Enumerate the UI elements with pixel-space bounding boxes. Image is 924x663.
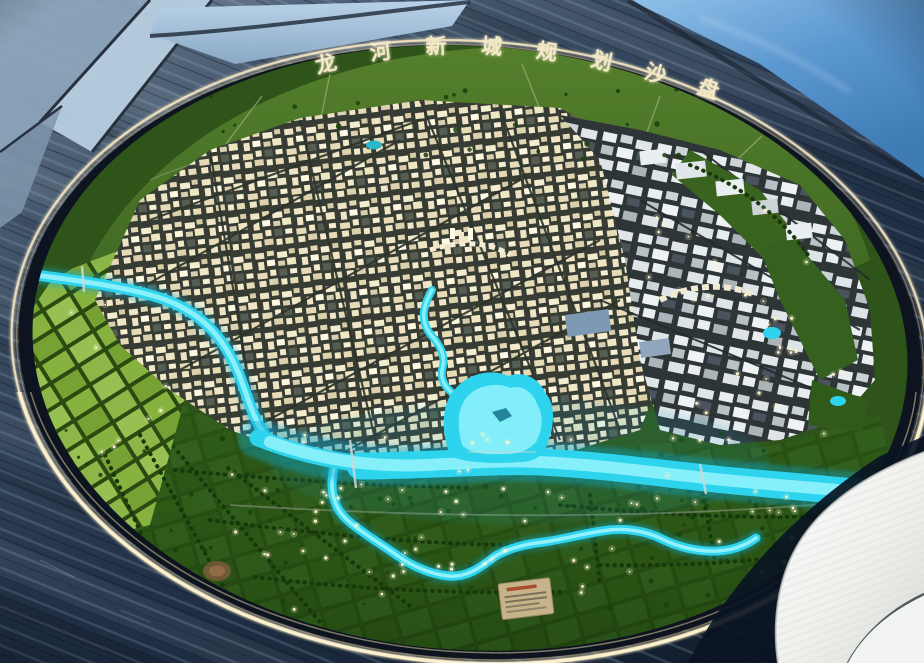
photo-svg: 龙河新城规划沙盘 (0, 0, 924, 663)
photo-of-planning-sand-table: 龙河新城规划沙盘 (0, 0, 924, 663)
